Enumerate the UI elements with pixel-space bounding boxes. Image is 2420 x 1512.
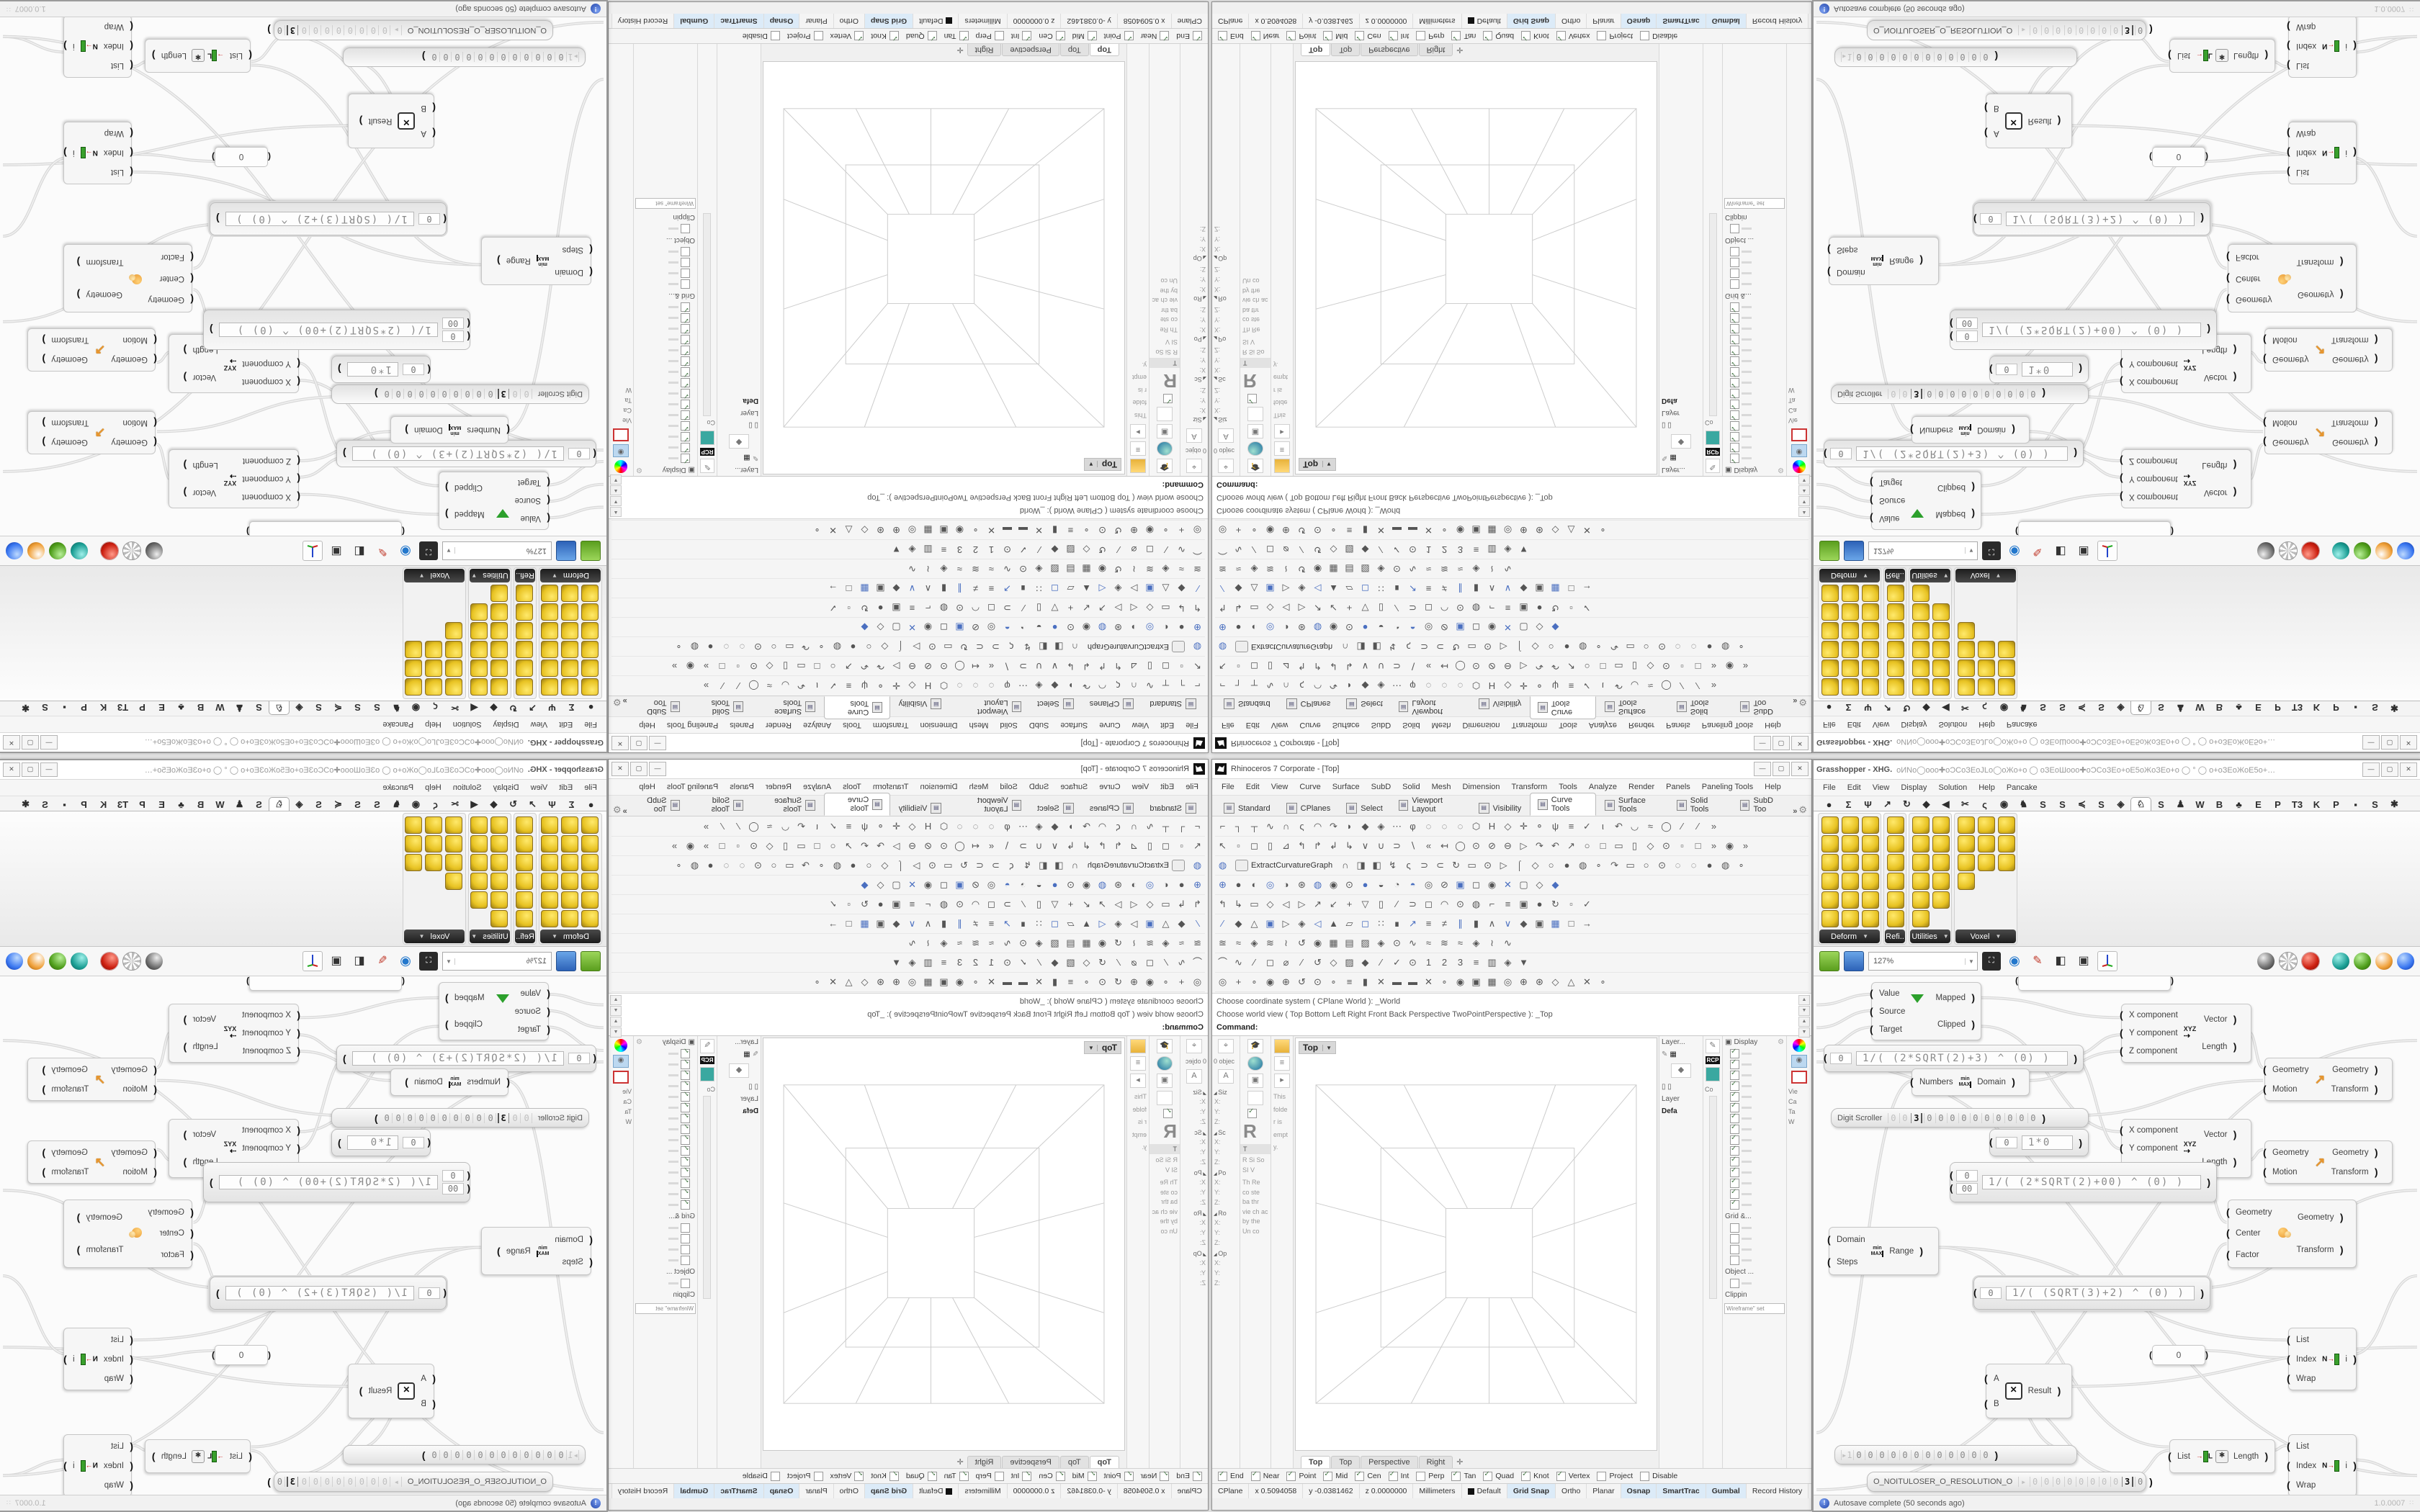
target-rect-icon[interactable]	[1791, 428, 1807, 441]
expand-arrow-icon[interactable]: ▸	[1130, 1074, 1146, 1088]
toolbar-icon[interactable]: ◌	[719, 639, 734, 654]
viewport-tab-perspective-2[interactable]: Perspective	[1361, 1456, 1417, 1468]
expression-formula[interactable]: 1/( (SQRT(3)+2) ^ (0) )	[2006, 212, 2195, 226]
checkbox-icon[interactable]	[681, 1223, 690, 1233]
toolbar-icon[interactable]: ◍	[936, 600, 951, 616]
scroller-digit[interactable]: 0	[1981, 390, 1991, 400]
component-icon[interactable]	[1932, 816, 1950, 834]
toolbar-icon[interactable]: ◒	[1031, 620, 1047, 635]
toolbar-icon[interactable]: ∿	[905, 936, 920, 951]
toolbar-icon[interactable]: ▬	[1389, 975, 1404, 990]
toolbar-icon[interactable]: ⋯	[1016, 678, 1031, 693]
toolbar-icon[interactable]: ≋	[1263, 562, 1278, 577]
gh-plugin-tab-22[interactable]: E	[152, 701, 171, 714]
toolbar-icon[interactable]: ◔	[1016, 878, 1031, 893]
gear-icon[interactable]: ⚙	[1778, 1038, 1784, 1046]
input-port[interactable]: List	[101, 168, 131, 177]
toolbar-icon[interactable]: ≈	[762, 678, 777, 693]
checkbox-icon[interactable]	[1730, 302, 1739, 312]
toolbar-icon[interactable]: ▷	[1278, 917, 1294, 932]
gh-plugin-tab-9[interactable]: ◉	[406, 701, 426, 714]
gh-plugin-tab-7[interactable]: ✂	[1955, 798, 1975, 811]
toolbar-icon[interactable]: ▮	[1469, 917, 1484, 932]
gh-plugin-tab-27[interactable]: ▪	[2346, 701, 2365, 714]
menu-item-panels[interactable]: Panels	[725, 719, 759, 731]
slider-digit[interactable]: 0	[2030, 25, 2040, 35]
toolbar-icon[interactable]: ς	[1111, 819, 1126, 834]
input-port[interactable]: Motion	[109, 1085, 156, 1094]
viewport-title-dropdown-icon[interactable]: ▼	[1088, 1045, 1098, 1051]
help-checkbox[interactable]	[1240, 1108, 1270, 1119]
toolbar-icon[interactable]: ◍	[1575, 639, 1590, 654]
slider-digit[interactable]: 0	[1968, 1450, 1978, 1460]
component-icon[interactable]	[1887, 603, 1904, 621]
menu-item-tools[interactable]: Tools	[838, 719, 866, 731]
slider-digit[interactable]: 0	[2076, 1477, 2086, 1487]
toolbar-icon[interactable]: ◆	[1174, 917, 1189, 932]
display-checkbox-row[interactable]	[1723, 377, 1786, 388]
toolbar-icon[interactable]: ▨	[1063, 955, 1078, 971]
output-port[interactable]: Vector	[186, 1130, 221, 1139]
toolbar-icon[interactable]: ◻	[984, 897, 999, 912]
component-icon[interactable]	[425, 816, 442, 834]
toolbar-tab-curve-tools[interactable]: ▤Curve Tools	[824, 696, 890, 719]
toolbar-icon[interactable]: ◎	[1142, 620, 1157, 635]
toolbar-tab-cplanes[interactable]: ▤CPlanes	[1279, 696, 1338, 711]
gumball-icon[interactable]: ⌖	[1218, 1039, 1234, 1053]
toolbar-icon[interactable]: ∧	[1484, 581, 1500, 596]
display-checkbox-row[interactable]	[634, 1135, 697, 1146]
expression-input-cell[interactable]: 0	[418, 1287, 440, 1299]
gh-node-list-length[interactable]: List→L✱Length	[145, 39, 251, 73]
input-port[interactable]: Geometry	[145, 295, 192, 304]
toolbar-icon[interactable]: ◈	[1031, 562, 1047, 577]
component-icon[interactable]	[516, 873, 533, 890]
component-icon[interactable]	[1862, 660, 1879, 677]
toolbar-icon[interactable]: ↯	[1020, 858, 1035, 873]
checkbox-icon[interactable]	[1286, 1472, 1296, 1481]
toolbar-icon[interactable]: ▨	[1342, 955, 1357, 971]
toolbar-icon[interactable]: ▤	[1342, 936, 1357, 951]
display-checkbox-row[interactable]	[634, 366, 697, 377]
toolbar-icon[interactable]: ⚬	[873, 819, 888, 834]
toolbar-icon[interactable]: ✕	[825, 523, 841, 538]
toolbar-icon[interactable]: ⊃	[1389, 839, 1404, 854]
toolbar-icon[interactable]: ◨	[1052, 858, 1067, 873]
clipping-section-header[interactable]: Clippin	[1723, 1289, 1786, 1301]
component-icon[interactable]	[1912, 873, 1930, 890]
toolbar-icon[interactable]: ⊙	[1469, 839, 1484, 854]
toolbar-icon[interactable]: ▮	[1358, 523, 1373, 538]
display-checkbox-row[interactable]	[1723, 410, 1786, 420]
help-tab[interactable]: T	[1240, 358, 1270, 368]
pencil-icon[interactable]: ✎	[700, 1039, 714, 1053]
toolbar-icon[interactable]: 3	[1453, 542, 1468, 557]
toolbar-icon[interactable]: ∕	[1389, 897, 1404, 912]
gh-plugin-tab-1[interactable]: Σ	[562, 701, 581, 714]
gh-plugin-tab-24[interactable]: T3	[2287, 798, 2307, 811]
toolbar-icon[interactable]: ≊	[1190, 562, 1205, 577]
viewport-tab-right-3[interactable]: Right	[967, 44, 1002, 56]
input-port[interactable]: Wrap	[2289, 23, 2319, 32]
toolbar-icon[interactable]: ∘	[1437, 975, 1452, 990]
toolbar-icon[interactable]: ○	[1579, 659, 1595, 674]
toolbar-icon[interactable]: ◠	[1437, 600, 1452, 616]
axis-field[interactable]: Z:	[1180, 264, 1208, 274]
component-icon[interactable]	[1842, 891, 1859, 909]
input-port[interactable]: X component	[2122, 1011, 2181, 1020]
toolbar-icon[interactable]: ∘	[671, 639, 686, 654]
axis-field[interactable]: Z:	[1212, 1117, 1240, 1127]
display-checkbox-row[interactable]	[1723, 246, 1786, 257]
gh-node-list-item-2[interactable]: ListIndexWrapN→i	[63, 1434, 132, 1495]
toolbar-tab-subd-too[interactable]: ▤SubD Too	[629, 696, 687, 718]
toolbar-icon[interactable]: ↳	[1174, 897, 1189, 912]
checkbox-icon[interactable]	[1730, 224, 1739, 233]
close-button[interactable]: ✕	[2400, 735, 2417, 750]
toolbar-icon[interactable]: ⬡	[936, 819, 951, 834]
zoom-dropdown-icon[interactable]: ▼	[443, 958, 455, 965]
toolbar-icon[interactable]: ∕	[1158, 542, 1173, 557]
display-checkbox-row[interactable]	[634, 334, 697, 345]
menu-item-analyze[interactable]: Analyze	[798, 781, 836, 793]
command-scrollbar[interactable]: ▲▼▲▼	[1798, 995, 1810, 1038]
viewport-tab-right-3[interactable]: Right	[1419, 44, 1453, 56]
gh-node-expression-2[interactable]: 01*0	[1989, 1129, 2089, 1156]
expression-input-cell[interactable]: 00	[1956, 1183, 1978, 1194]
boxedit-section-ro[interactable]: Ro	[1212, 1207, 1240, 1218]
menu-item-solid[interactable]: Solid	[995, 719, 1022, 731]
status-cell-record-history[interactable]: Record History	[1747, 1484, 1809, 1498]
checkbox-icon[interactable]	[681, 400, 690, 409]
component-icon[interactable]	[1998, 660, 2015, 677]
custom-preview-green-icon[interactable]	[49, 542, 66, 559]
toolbar-icon[interactable]: ↺	[1095, 955, 1110, 971]
output-port[interactable]: Geometry	[44, 356, 91, 364]
component-icon[interactable]	[581, 891, 599, 909]
toolbar-icon[interactable]: ↗	[1095, 600, 1110, 616]
grid-section-header[interactable]: Grid &...	[1723, 1210, 1786, 1223]
axis-field[interactable]: Y:	[1180, 315, 1208, 325]
gh-node-slider-resolution[interactable]: O_NOITULOSER_O_RESOLUTION_O▸0000000030	[1867, 1472, 2146, 1492]
output-port[interactable]: Length	[186, 1043, 221, 1051]
toolbar-icon[interactable]: ▭	[1611, 839, 1626, 854]
toolbar-icon[interactable]: ◎	[905, 523, 920, 538]
component-icon[interactable]	[516, 641, 533, 658]
component-icon[interactable]	[516, 854, 533, 871]
gh-plugin-tab-19[interactable]: W	[210, 798, 230, 811]
menu-item-tools[interactable]: Tools	[838, 781, 866, 793]
viewport-tab-perspective-2[interactable]: Perspective	[1361, 44, 1417, 56]
osnap-toggle-cen[interactable]: Cen	[1039, 1472, 1065, 1481]
gh-plugin-tab-8[interactable]: ς	[1975, 701, 1994, 714]
toolbar-icon[interactable]: →	[825, 581, 841, 596]
toolbar-icon[interactable]: 3	[952, 955, 967, 971]
gumball-icon[interactable]: ⌖	[1218, 459, 1234, 473]
osnap-toggle-cen[interactable]: Cen	[1039, 32, 1065, 41]
component-icon[interactable]	[1958, 660, 1975, 677]
maximize-button[interactable]: ▢	[1773, 762, 1790, 776]
toolbar-icon[interactable]: ↺	[1111, 975, 1126, 990]
checkbox-icon[interactable]	[854, 1472, 864, 1481]
toolbar-icon[interactable]: ◯	[952, 839, 967, 854]
gh-plugin-tab-9[interactable]: ◉	[1994, 701, 2014, 714]
slider-digit[interactable]: 0	[1899, 1450, 1909, 1460]
toolbar-icon[interactable]: ⊿	[1126, 659, 1142, 674]
toolbar-icon[interactable]: ↷	[798, 858, 813, 873]
component-icon[interactable]	[541, 641, 558, 658]
toolbar-icon[interactable]: ✕	[1031, 523, 1047, 538]
toolbar-icon[interactable]: ▯	[1263, 839, 1278, 854]
scroller-digit[interactable]: 0	[511, 1113, 521, 1123]
component-icon[interactable]	[1912, 603, 1930, 621]
osnap-toggle-near[interactable]: Near	[1251, 32, 1280, 41]
status-cell-record-history[interactable]: Record History	[1747, 14, 1809, 28]
component-icon[interactable]	[581, 603, 599, 621]
toolbar-icon[interactable]: ≡	[1342, 523, 1357, 538]
palette-group-label[interactable]: Refi..	[515, 569, 535, 582]
toolbar-icon[interactable]: ↳	[1174, 600, 1189, 616]
gear-icon[interactable]: ⚙	[1798, 804, 1807, 816]
preview-shaded-icon[interactable]	[101, 542, 118, 559]
toolbar-icon[interactable]: ▱	[1342, 581, 1357, 596]
toolbar-icon[interactable]: ◑	[1126, 620, 1142, 635]
toolbar-icon[interactable]: ∘	[1079, 975, 1094, 990]
toolbar-icon[interactable]: ◌	[1421, 678, 1436, 693]
toolbar-icon[interactable]: ▼	[889, 542, 904, 557]
input-port[interactable]: Target	[512, 1025, 548, 1034]
axis-field[interactable]: Y:	[1180, 355, 1208, 365]
toolbar-tab-select[interactable]: ▤Select	[1030, 801, 1081, 816]
toolbar-icon[interactable]: ∩	[1126, 819, 1142, 834]
gh-node-move-2[interactable]: GeometryMotion↗GeometryTransform	[27, 1140, 156, 1184]
toolbar-icon[interactable]: ∪	[1373, 659, 1389, 674]
gh-menu-item-file[interactable]: File	[1818, 719, 1841, 730]
display-checkbox-row[interactable]	[634, 453, 697, 464]
toolbar-icon[interactable]: ◌	[984, 819, 999, 834]
display-checkbox-row[interactable]	[1723, 356, 1786, 366]
axis-field[interactable]: Y:	[1180, 1187, 1208, 1197]
toolbar-tab-viewport-layout[interactable]: ▤Viewport Layout	[1391, 696, 1470, 718]
axis-field[interactable]: Z:	[1212, 385, 1240, 395]
toolbar-icon[interactable]: ◇	[857, 975, 872, 990]
checkbox-icon[interactable]	[1022, 32, 1031, 41]
input-port[interactable]: Domain	[552, 268, 591, 276]
menu-item-solid[interactable]: Solid	[995, 781, 1022, 793]
axis-field[interactable]: X:	[1180, 1097, 1208, 1107]
scroller-digit[interactable]: 0	[417, 1113, 427, 1123]
color-wheel-icon[interactable]	[614, 460, 627, 473]
toolbar-icon[interactable]: ≡	[1421, 581, 1436, 596]
checkbox-icon[interactable]	[681, 1114, 690, 1123]
slider-digit[interactable]: 0	[2053, 25, 2063, 35]
toolbar-icon[interactable]: ∿	[1174, 955, 1189, 971]
toolbar-icon[interactable]: ↗	[841, 839, 856, 854]
component-icon[interactable]	[405, 678, 422, 696]
component-icon[interactable]	[516, 891, 533, 909]
toolbar-icon[interactable]: ⌠	[893, 858, 908, 873]
menu-item-help[interactable]: Help	[1760, 719, 1786, 731]
slider-digit[interactable]: 0	[442, 1450, 452, 1460]
toolbar-icon[interactable]: ◆	[1548, 620, 1563, 635]
checkbox-icon[interactable]	[1124, 32, 1134, 41]
toolbar-icon[interactable]: ∘	[810, 975, 825, 990]
expression-input-cell[interactable]: 0	[403, 364, 424, 375]
component-icon[interactable]	[1932, 835, 1950, 852]
toolbar-icon[interactable]: ↯	[1020, 639, 1035, 654]
checkbox-icon[interactable]	[1730, 279, 1739, 289]
camera-widget-icon[interactable]: ▣	[327, 541, 346, 560]
axis-field[interactable]: Z:	[1212, 1238, 1240, 1248]
axis-field[interactable]: X:	[1180, 325, 1208, 335]
axes-widget-icon[interactable]	[2097, 541, 2117, 561]
component-icon[interactable]	[1862, 678, 1879, 696]
component-icon[interactable]	[1932, 854, 1950, 871]
toolbar-icon[interactable]: ◈	[1500, 542, 1515, 557]
component-icon[interactable]	[445, 835, 462, 852]
component-icon[interactable]	[1821, 873, 1839, 890]
teal-tool-icon[interactable]	[1706, 1067, 1720, 1081]
scroller-digit[interactable]: 0	[1935, 1113, 1945, 1123]
slider-digit[interactable]: 0	[1853, 1450, 1863, 1460]
gh-plugin-tab-18[interactable]: ♟	[2171, 798, 2190, 811]
toolbar-icon[interactable]: ≠	[1437, 917, 1452, 932]
palette-group-label[interactable]: Refi..	[1885, 930, 1905, 943]
slider-handle[interactable]: ▸1	[1841, 1450, 1852, 1460]
component-icon[interactable]	[470, 891, 488, 909]
toolbar-icon[interactable]: ▫	[841, 600, 856, 616]
status-cell-millimeters[interactable]: Millimeters	[1413, 1484, 1461, 1498]
component-icon[interactable]	[1887, 660, 1904, 677]
toolbar-icon[interactable]: ◎	[984, 620, 999, 635]
axes-widget-icon[interactable]	[302, 541, 323, 561]
toolbar-icon[interactable]: △	[1564, 975, 1579, 990]
toolbar-icon[interactable]: ┐	[1231, 819, 1246, 834]
osnap-toggle-perp[interactable]: Perp	[976, 1472, 1004, 1481]
checkbox-icon[interactable]	[1730, 1125, 1739, 1134]
toolbar-icon[interactable]: ≈	[952, 562, 967, 577]
display-checkbox-row[interactable]	[634, 1233, 697, 1244]
gh-plugin-tab-14[interactable]: S	[2092, 798, 2111, 811]
status-cell-filter[interactable]: Filter	[1809, 1484, 1811, 1498]
menu-item-render[interactable]: Render	[1623, 719, 1659, 731]
gh-plugin-tab-3[interactable]: ↗	[1878, 798, 1897, 811]
output-port[interactable]: Mapped	[447, 994, 488, 1002]
toolbar-icon[interactable]: ◆	[1358, 955, 1373, 971]
input-port[interactable]: Z component	[239, 456, 298, 465]
osnap-toggle-point[interactable]: Point	[1104, 1472, 1134, 1481]
toolbar-icon[interactable]: ↶	[1611, 819, 1626, 834]
input-port[interactable]: X component	[239, 377, 298, 386]
display-checkbox-row[interactable]	[634, 1081, 697, 1092]
output-port[interactable]: Geometry	[2294, 290, 2341, 299]
toolbar-icon[interactable]: ✕	[1421, 975, 1436, 990]
toolbar-icon[interactable]: ↯	[1385, 639, 1400, 654]
gh-node-remap-numbers[interactable]: ValueSourceTargetMappedClipped	[439, 472, 549, 530]
input-port[interactable]: Y component	[239, 474, 298, 483]
status-cell-gumbal[interactable]: Gumbal	[1706, 14, 1747, 28]
status-cell-default[interactable]: Default	[1462, 1484, 1507, 1498]
toolbar-icon[interactable]: ∕	[1373, 955, 1389, 971]
toolbar-icon[interactable]: ◌	[1437, 678, 1452, 693]
component-icon[interactable]	[1842, 622, 1859, 639]
toolbar-icon[interactable]: ▷	[1126, 917, 1142, 932]
viewport-top[interactable]: Top ▼	[763, 1038, 1125, 1451]
apply-button[interactable]: A	[1218, 1069, 1234, 1084]
input-port[interactable]: X component	[239, 1011, 298, 1020]
status-cell-osnap[interactable]: Osnap	[763, 14, 799, 28]
toolbar-icon[interactable]: ✛	[889, 819, 904, 834]
toolbar-tab-cplanes[interactable]: ▤CPlanes	[1083, 801, 1142, 816]
status-cell-default[interactable]: Default	[913, 14, 958, 28]
toolbar-icon[interactable]: ◍	[687, 858, 702, 873]
camera-icon[interactable]: ◉	[1791, 1055, 1807, 1068]
gh-node-expression-selected[interactable]: 01/( (SQRT(3)+2) ^ (0) )	[210, 202, 447, 235]
command-scrollbar[interactable]: ▲▼▲▼	[610, 474, 622, 517]
component-icon[interactable]	[490, 873, 508, 890]
toolbar-icon[interactable]: ✓	[1579, 819, 1595, 834]
checkbox-icon[interactable]	[1730, 1157, 1739, 1166]
axis-field[interactable]: Z:	[1180, 305, 1208, 315]
gh-node-bounds[interactable]: NumbersminMAXDomain	[390, 416, 508, 444]
toolbar-icon[interactable]: ◎	[1263, 620, 1278, 635]
toolbar-icon[interactable]: ┐	[1231, 678, 1246, 693]
component-icon[interactable]	[1912, 585, 1930, 602]
toolbar-icon[interactable]: φ	[1405, 819, 1420, 834]
toolbar-icon[interactable]: 1	[984, 542, 999, 557]
slider-digit[interactable]: 0	[430, 1450, 440, 1460]
toolbar-icon[interactable]: ▯	[1373, 600, 1389, 616]
input-port[interactable]: List	[2170, 1452, 2193, 1461]
display-checkbox-row[interactable]	[1723, 420, 1786, 431]
toolbar-icon[interactable]: ↙	[1326, 600, 1341, 616]
scroller-digit[interactable]: 0	[417, 390, 427, 400]
toolbar-icon[interactable]: ↻	[1548, 600, 1563, 616]
viewport-title-dropdown-icon[interactable]: ▼	[1322, 1045, 1332, 1051]
osnap-toggle-vertex[interactable]: Vertex	[830, 1472, 864, 1481]
toolbar-icon[interactable]: ▭	[941, 858, 956, 873]
component-icon[interactable]	[1978, 660, 1995, 677]
component-icon[interactable]	[1862, 835, 1879, 852]
slider-digit[interactable]: 0	[2099, 25, 2109, 35]
layer-row-default[interactable]: Defa	[1659, 395, 1703, 407]
checkbox-icon[interactable]	[681, 224, 690, 233]
toolbar-icon[interactable]: ◎	[1142, 878, 1157, 893]
toolbar-icon[interactable]: ≋	[1142, 562, 1157, 577]
checkbox-icon[interactable]	[1640, 32, 1649, 41]
input-port[interactable]: List	[2289, 1336, 2319, 1344]
toolbar-icon[interactable]: ▯	[1142, 839, 1157, 854]
gh-node-slider-resolution[interactable]: O_NOITULOSER_O_RESOLUTION_O▸0000000030	[274, 20, 553, 40]
gh-plugin-tab-15[interactable]: ◈	[290, 701, 309, 714]
input-port[interactable]: Wrap	[2289, 1481, 2319, 1490]
gh-plugin-tab-22[interactable]: E	[2249, 798, 2268, 811]
toolbar-icon[interactable]: ∪	[1031, 659, 1047, 674]
toolbar-icon[interactable]: ↗	[1095, 897, 1110, 912]
toolbar-icon[interactable]: ⊙	[746, 839, 761, 854]
toolbar-icon[interactable]: →	[1579, 581, 1595, 596]
toolbar-icon[interactable]: ●	[1702, 858, 1717, 873]
checkbox-icon[interactable]	[1730, 1092, 1739, 1102]
display-checkbox-row[interactable]	[634, 1244, 697, 1255]
component-icon[interactable]	[1842, 660, 1859, 677]
toolbar-icon[interactable]: ⊘	[968, 620, 983, 635]
grid-section-header[interactable]: Grid &...	[634, 289, 697, 302]
component-icon[interactable]	[470, 854, 488, 871]
expression-formula[interactable]: 1*0	[2022, 1135, 2073, 1150]
input-port[interactable]: Target	[1872, 479, 1908, 487]
preview-wire-icon[interactable]	[2279, 952, 2298, 971]
